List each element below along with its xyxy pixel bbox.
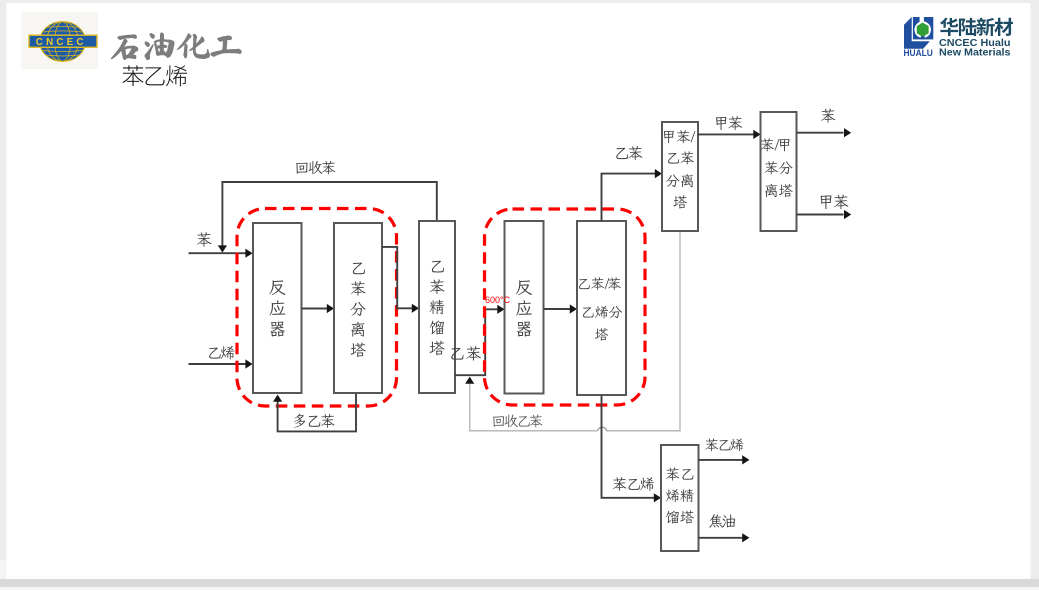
svg-text:HUALU: HUALU [904,48,933,58]
svg-text:New Materials: New Materials [939,48,1011,59]
svg-text:CNCEC: CNCEC [36,37,87,48]
svg-text:600°C: 600°C [485,295,511,305]
